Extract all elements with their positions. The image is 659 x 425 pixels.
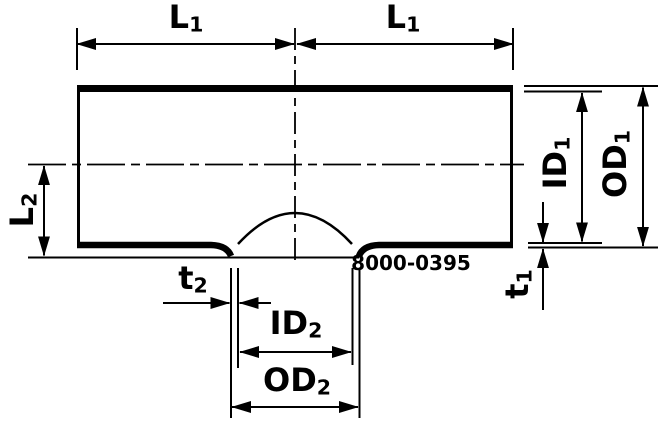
label-t2-subscript: 2 (194, 274, 208, 298)
run-bottom-wall-left (77, 245, 231, 256)
label-od2-text: OD (263, 361, 317, 399)
label-t1-subscript: 1 (513, 269, 537, 283)
label-l1-left-subscript: 1 (189, 13, 203, 37)
run-diameter-dimensions (524, 86, 658, 310)
label-od1-subscript: 1 (611, 130, 635, 144)
label-t2: t2 (178, 262, 208, 294)
label-l1-right: L1 (386, 1, 421, 33)
label-t1: t1 (501, 269, 533, 299)
centerlines (28, 28, 524, 262)
label-od1-text: OD (596, 144, 634, 198)
label-t2-text: t (178, 259, 193, 297)
label-l1-left-text: L (169, 0, 189, 36)
label-id1-subscript: 1 (551, 137, 575, 151)
label-l2-text: L (3, 207, 41, 227)
label-id2-text: ID (270, 304, 308, 342)
figure-number: 8000-0395 (351, 253, 471, 273)
drawing-linework (0, 0, 659, 425)
label-l2: L2 (6, 193, 38, 228)
label-od1: OD1 (599, 130, 631, 198)
pipe-run-body (28, 85, 513, 258)
label-id2-subscript: 2 (308, 319, 322, 343)
tee-fitting-dimension-drawing: L1 L1 L2 ID1 OD1 t1 t2 ID2 OD2 8000-0395 (0, 0, 659, 425)
label-l1-right-text: L (386, 0, 406, 36)
label-l1-left: L1 (169, 1, 204, 33)
label-t1-text: t (498, 283, 536, 298)
label-id2: ID2 (270, 307, 323, 339)
label-od2-subscript: 2 (317, 376, 331, 400)
label-l2-subscript: 2 (18, 193, 42, 207)
label-id1-text: ID (536, 151, 574, 189)
label-id1: ID1 (539, 137, 571, 190)
label-l1-right-subscript: 1 (406, 13, 420, 37)
label-od2: OD2 (263, 364, 331, 396)
